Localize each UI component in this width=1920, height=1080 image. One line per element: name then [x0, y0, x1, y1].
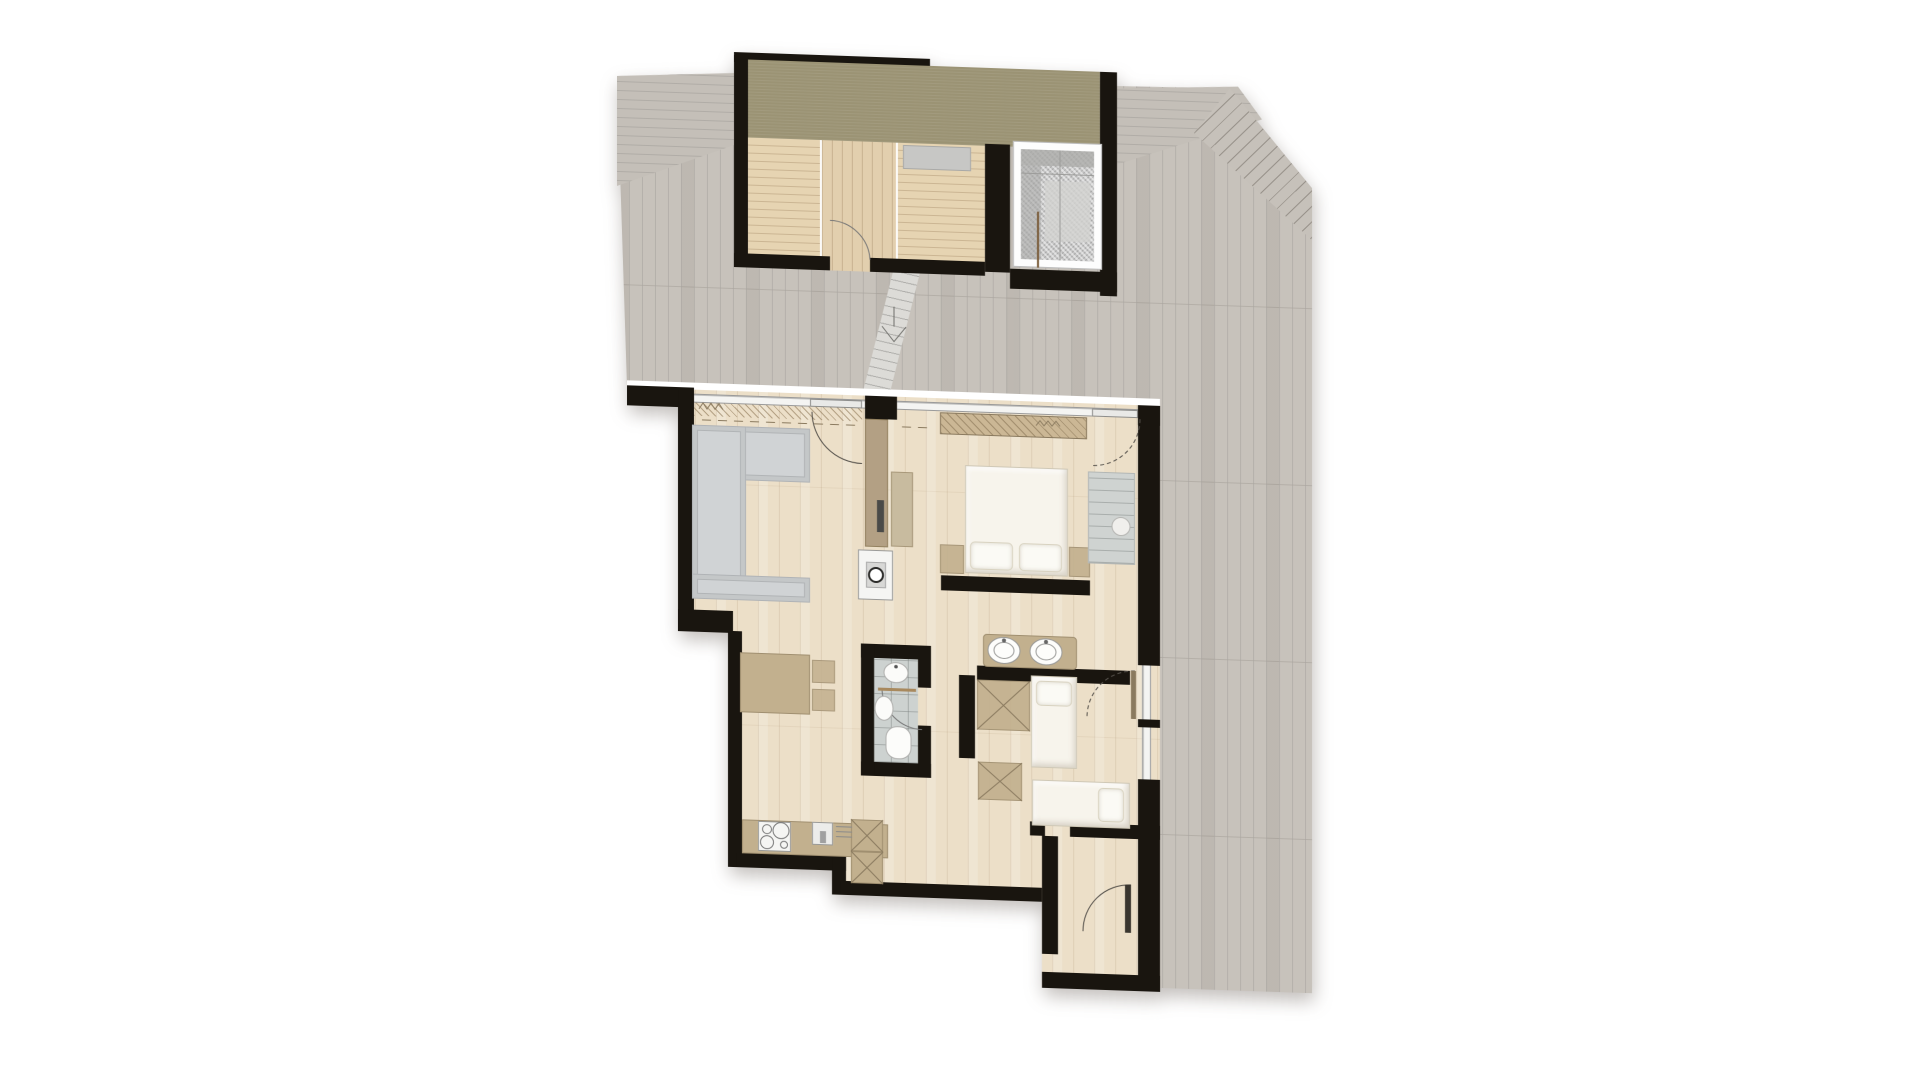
sill-squiggle-right: [1036, 421, 1060, 427]
living-terrace-door-swing: [812, 412, 862, 464]
second-bedroom-door-swing: [1087, 669, 1136, 719]
structure-room-door-swing: [830, 220, 870, 259]
kitchen-sink-faucet: [820, 826, 852, 844]
curtain-dashes: [702, 420, 934, 428]
bedroom-terrace-door-swing: [1092, 418, 1140, 468]
plan-annotations: [590, 0, 1350, 1080]
skylight-bars: [1021, 149, 1094, 262]
entry-door-swing: [1083, 883, 1131, 933]
page-canvas: Attic apartment floor plan with rooftop …: [0, 0, 1920, 1080]
cooktop-burners: [761, 822, 790, 849]
walkway-chevron: [882, 306, 906, 342]
vanity-sinks: [988, 637, 1062, 666]
round-stool: [1112, 517, 1130, 536]
sill-squiggle-left: [699, 403, 723, 410]
stove-ring: [869, 568, 883, 582]
floor-plan: [590, 0, 1350, 1080]
wc-fixtures: [875, 662, 911, 759]
